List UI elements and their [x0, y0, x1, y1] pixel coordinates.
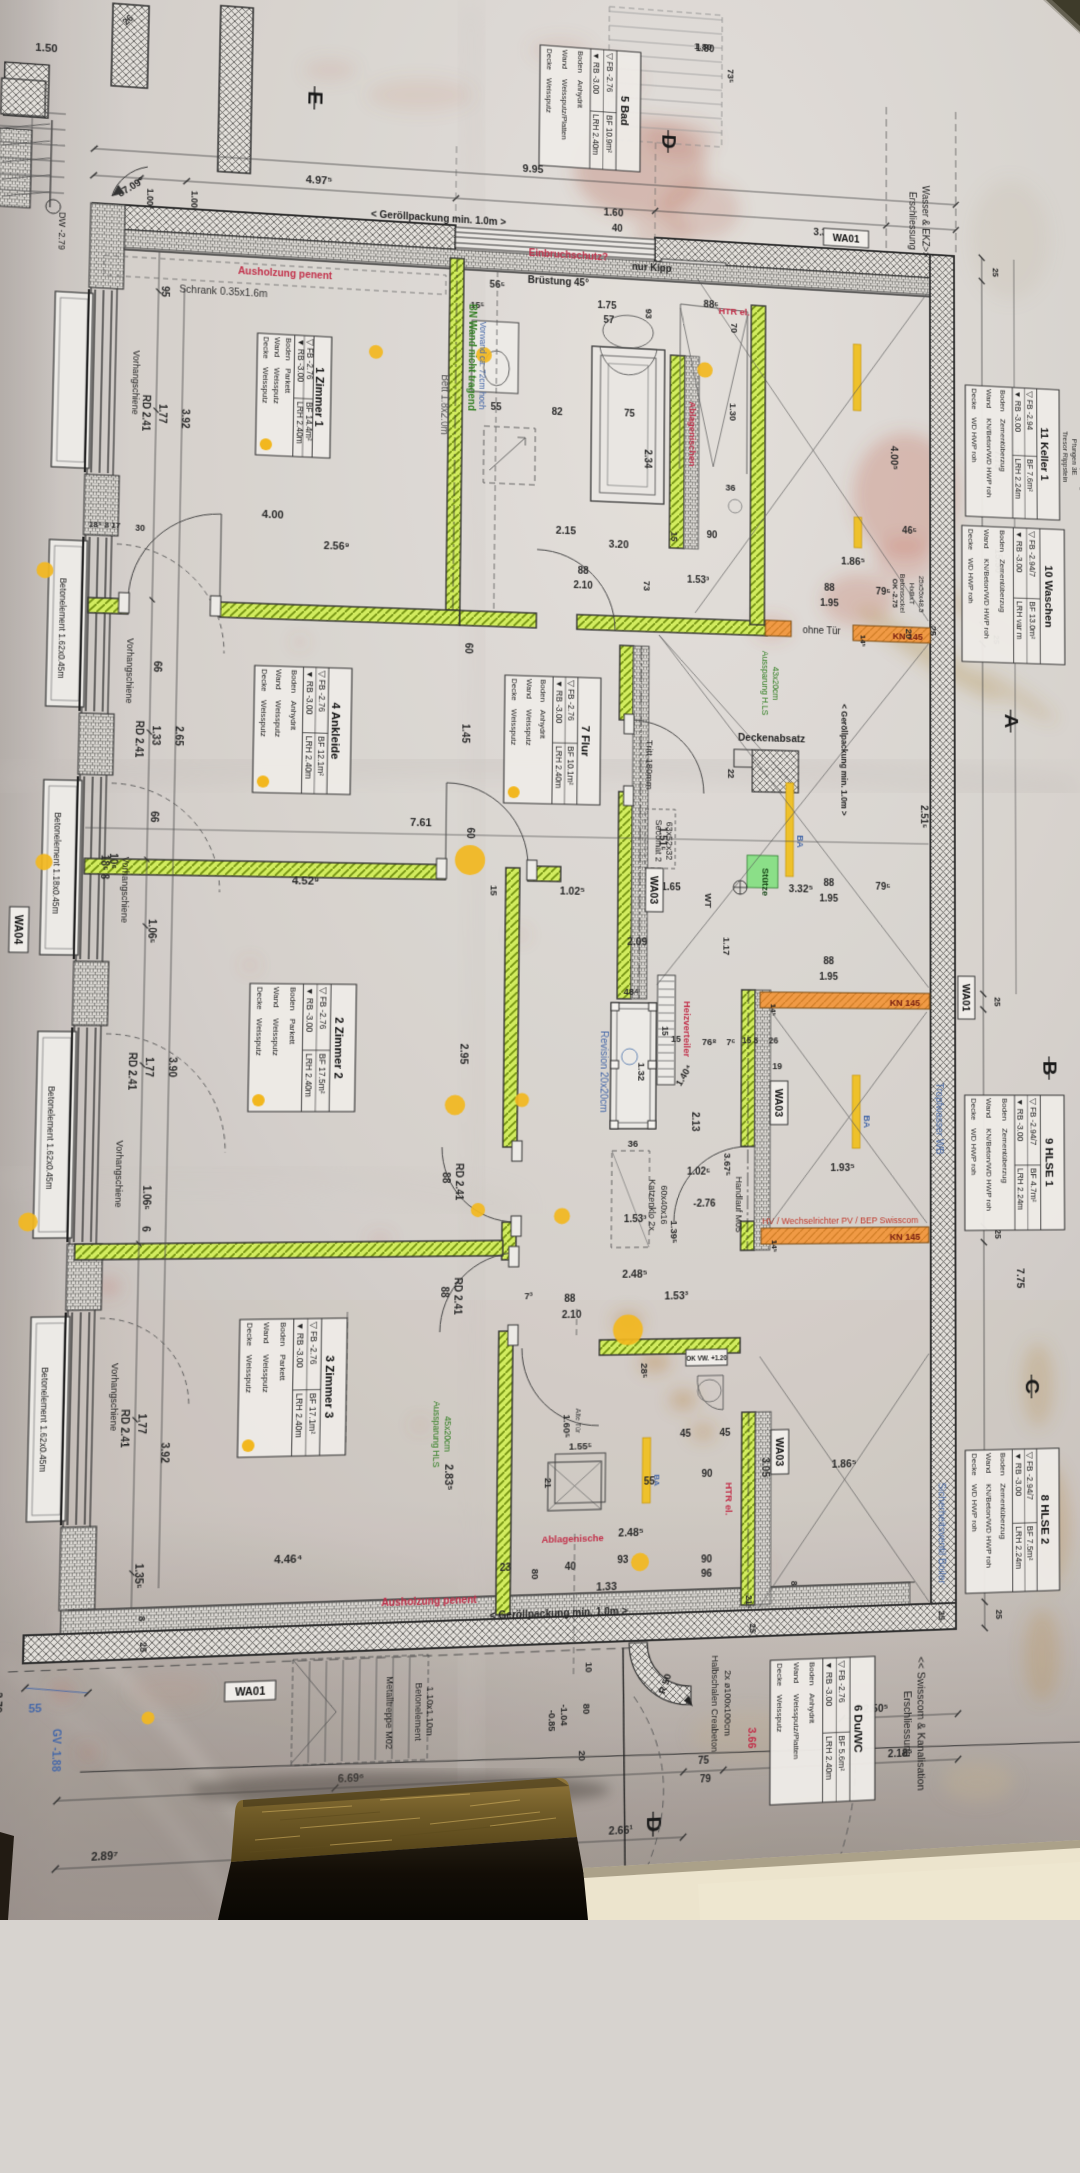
svg-text:60: 60 [462, 643, 473, 655]
svg-text:9 HLSE 1: 9 HLSE 1 [1042, 1138, 1055, 1187]
svg-text:Weissputz: Weissputz [775, 1695, 784, 1733]
svg-text:Wand: Wand [271, 987, 280, 1008]
svg-text:KN/Beton/WD HWP roh: KN/Beton/WD HWP roh [983, 558, 991, 639]
svg-text:Erschliessung: Erschliessung [901, 1691, 912, 1758]
svg-text:79⁵: 79⁵ [876, 882, 891, 893]
svg-text:25: 25 [993, 997, 1002, 1006]
svg-text:25: 25 [138, 1642, 149, 1653]
svg-text:▽ FB -2.94: ▽ FB -2.94 [1025, 391, 1034, 430]
svg-text:90: 90 [707, 530, 718, 541]
svg-text:Boden: Boden [808, 1662, 817, 1686]
svg-text:Heizverteiler: Heizverteiler [681, 1001, 692, 1057]
svg-text:3.32⁵: 3.32⁵ [789, 884, 813, 896]
svg-text:45: 45 [719, 1428, 730, 1439]
svg-text:OK VW. +1.20: OK VW. +1.20 [686, 1355, 727, 1363]
svg-text:LRH 2.24m: LRH 2.24m [1016, 1168, 1025, 1210]
svg-text:BF 7.5m²: BF 7.5m² [1026, 1526, 1035, 1561]
svg-text:Wasser & EKZ>>: Wasser & EKZ>> [920, 185, 930, 257]
svg-text:15: 15 [660, 1026, 670, 1036]
svg-text:1.40⁴: 1.40⁴ [674, 1063, 695, 1088]
svg-text:Parkett: Parkett [283, 368, 292, 394]
svg-text:Alte Tür: Alte Tür [574, 1408, 583, 1434]
svg-text:Decke: Decke [970, 388, 978, 410]
svg-text:-2.76: -2.76 [693, 1199, 716, 1210]
svg-text:8: 8 [136, 1616, 147, 1622]
svg-text:6.69⁶: 6.69⁶ [338, 1772, 365, 1786]
svg-text:D: D [658, 134, 681, 150]
svg-text:Decke: Decke [967, 528, 975, 550]
svg-text:1.00: 1.00 [189, 190, 199, 208]
svg-text:1.80: 1.80 [694, 42, 712, 53]
svg-text:43x20cm: 43x20cm [771, 667, 780, 701]
svg-text:60: 60 [464, 827, 475, 839]
svg-text:45: 45 [680, 1429, 691, 1440]
svg-text:▼ RB -3.00: ▼ RB -3.00 [824, 1661, 834, 1707]
svg-text:66: 66 [148, 811, 159, 823]
svg-text:LRH 2.40m: LRH 2.40m [303, 736, 314, 779]
svg-text:BF 17.5m²: BF 17.5m² [317, 1053, 328, 1094]
svg-text:Wand: Wand [560, 49, 569, 70]
svg-text:H: H [465, 1799, 490, 1816]
svg-text:2.66¹: 2.66¹ [609, 1824, 634, 1837]
svg-text:19: 19 [772, 1061, 782, 1071]
svg-text:Weissputz: Weissputz [258, 700, 268, 737]
svg-text:▼ RB -3.00: ▼ RB -3.00 [304, 987, 315, 1032]
svg-text:▽ FB -2.76: ▽ FB -2.76 [837, 1660, 847, 1703]
svg-text:LRH 2.40m: LRH 2.40m [553, 746, 563, 789]
svg-text:RD 2.41: RD 2.41 [451, 1277, 462, 1315]
svg-text:88: 88 [438, 1286, 449, 1298]
svg-text:WD HWP roh: WD HWP roh [970, 417, 978, 463]
svg-text:HTR el.: HTR el. [718, 306, 750, 318]
svg-text:1.17: 1.17 [721, 937, 732, 955]
svg-text:Tresor Rippstein: Tresor Rippstein [1061, 431, 1069, 483]
svg-text:1.65: 1.65 [661, 882, 680, 893]
svg-text:RD 2.41: RD 2.41 [453, 1163, 464, 1201]
svg-text:WA03: WA03 [773, 1437, 785, 1466]
svg-text:80: 80 [529, 1568, 540, 1580]
svg-text:Decke: Decke [775, 1663, 784, 1687]
svg-text:Stütze: Stütze [760, 868, 770, 897]
svg-text:2.15: 2.15 [556, 525, 576, 537]
svg-text:75: 75 [698, 1755, 709, 1767]
svg-text:HTR el.: HTR el. [723, 1482, 734, 1516]
svg-text:55: 55 [28, 1703, 42, 1716]
svg-text:E: E [303, 90, 328, 105]
svg-text:-1.04: -1.04 [559, 1704, 569, 1727]
svg-text:75: 75 [624, 409, 635, 420]
svg-text:1.93⁵: 1.93⁵ [830, 1162, 854, 1174]
svg-text:1.06⁵: 1.06⁵ [140, 1185, 152, 1210]
svg-text:▼ RB -3.00: ▼ RB -3.00 [304, 670, 315, 715]
svg-text:18⁵ 8 17: 18⁵ 8 17 [89, 520, 122, 530]
svg-text:Weissputz: Weissputz [272, 367, 282, 404]
svg-text:40: 40 [612, 224, 623, 235]
svg-text:79: 79 [700, 1774, 711, 1786]
svg-text:18⁵ 8: 18⁵ 8 [98, 854, 110, 879]
svg-text:7 Flur: 7 Flur [579, 725, 593, 757]
svg-text:88: 88 [824, 583, 835, 594]
svg-text:▼ RB -3.00: ▼ RB -3.00 [1013, 390, 1022, 432]
svg-text:C: C [1021, 1379, 1044, 1394]
svg-text:4 Ankleide: 4 Ankleide [329, 702, 344, 760]
svg-text:2 Zimmer 2: 2 Zimmer 2 [331, 1017, 346, 1079]
svg-text:1.33: 1.33 [596, 1581, 617, 1594]
svg-text:3.90: 3.90 [166, 1057, 178, 1077]
svg-text:1.06⁵: 1.06⁵ [145, 919, 157, 944]
svg-text:3.92: 3.92 [158, 1442, 170, 1463]
svg-text:LRH var m: LRH var m [1014, 601, 1023, 640]
svg-text:1.35⁵: 1.35⁵ [132, 1563, 144, 1589]
svg-text:15: 15 [671, 1034, 681, 1044]
svg-text:76⁸: 76⁸ [702, 1037, 717, 1048]
svg-text:Vorhangschiene: Vorhangschiene [113, 1140, 125, 1207]
svg-text:Anhydrit: Anhydrit [538, 710, 547, 740]
svg-text:WA01: WA01 [235, 1685, 265, 1699]
svg-text:1.75: 1.75 [597, 300, 616, 311]
svg-text:Boden: Boden [278, 1322, 288, 1347]
svg-text:Brüstung 45°: Brüstung 45° [528, 275, 589, 289]
svg-text:Boden: Boden [998, 530, 1006, 553]
svg-text:2.83⁵: 2.83⁵ [442, 1464, 454, 1490]
svg-text:< Geröllpackung min. 1.0m >: < Geröllpackung min. 1.0m > [839, 704, 848, 816]
svg-text:2x ø100x100cm: 2x ø100x100cm [723, 1670, 733, 1736]
svg-text:1.02⁵: 1.02⁵ [560, 886, 585, 898]
svg-text:90: 90 [701, 1469, 712, 1480]
svg-text:Weissputz: Weissputz [254, 1018, 264, 1056]
svg-text:1.30: 1.30 [727, 403, 737, 422]
svg-text:1.33: 1.33 [149, 725, 161, 745]
svg-text:KN/Beton/WD HWP roh: KN/Beton/WD HWP roh [984, 418, 992, 498]
svg-text:2.48⁵: 2.48⁵ [622, 1269, 647, 1281]
svg-text:1.53³: 1.53³ [664, 1290, 688, 1302]
svg-text:LRH 2.40m: LRH 2.40m [303, 1053, 314, 1097]
svg-text:Zementüberzug: Zementüberzug [999, 1483, 1007, 1539]
svg-text:Ausholzung penent: Ausholzung penent [238, 266, 333, 282]
svg-text:14⁵: 14⁵ [859, 635, 867, 648]
svg-text:Ablagenische: Ablagenische [541, 1533, 604, 1546]
svg-text:3.67⁵: 3.67⁵ [721, 1153, 732, 1176]
svg-text:2.51⁵: 2.51⁵ [918, 805, 928, 829]
svg-text:25: 25 [991, 268, 1000, 277]
svg-text:Decke: Decke [970, 1453, 978, 1476]
svg-text:Weissputz/Platten: Weissputz/Platten [791, 1694, 800, 1760]
svg-text:80: 80 [580, 1703, 591, 1715]
svg-text:1.55⁵: 1.55⁵ [569, 1441, 592, 1452]
svg-text:Boden: Boden [539, 679, 548, 702]
svg-text:1.86⁵: 1.86⁵ [832, 1458, 857, 1470]
svg-text:Weissputz: Weissputz [544, 78, 553, 114]
svg-text:BF 10.1m²: BF 10.1m² [566, 746, 576, 785]
svg-text:66: 66 [151, 661, 162, 673]
svg-text:25: 25 [937, 1611, 946, 1621]
svg-text:▽ FB -2.76: ▽ FB -2.76 [308, 1322, 319, 1365]
svg-text:Sicherheitsventil Boiler: Sicherheitsventil Boiler [936, 1482, 946, 1584]
svg-text:▽ FB -2.76: ▽ FB -2.76 [318, 987, 329, 1029]
svg-text:15 8: 15 8 [742, 1036, 758, 1046]
svg-text:10 Waschen: 10 Waschen [1042, 565, 1055, 628]
svg-text:Pfungen 3E: Pfungen 3E [1070, 439, 1078, 476]
svg-text:26: 26 [769, 1036, 779, 1046]
svg-text:LRH 2.24m: LRH 2.24m [1014, 1526, 1023, 1569]
svg-text:1.77: 1.77 [156, 404, 168, 424]
svg-text:Anhydrit: Anhydrit [808, 1693, 817, 1724]
svg-text:1.53³: 1.53³ [624, 1214, 647, 1225]
svg-text:Tritt 180mm: Tritt 180mm [643, 740, 654, 790]
svg-text:Boden: Boden [283, 337, 292, 361]
svg-text:Boden: Boden [289, 670, 298, 694]
svg-text:4.97⁵: 4.97⁵ [306, 174, 333, 187]
svg-text:Katzenklo 2x: Katzenklo 2x [647, 1179, 657, 1231]
svg-text:Wand: Wand [984, 1453, 992, 1474]
svg-text:7⁶: 7⁶ [726, 1037, 735, 1047]
svg-text:2.48⁵: 2.48⁵ [618, 1527, 643, 1540]
svg-text:Decke: Decke [259, 669, 268, 692]
svg-text:1.45: 1.45 [459, 724, 470, 744]
svg-text:Weissputz: Weissputz [524, 709, 533, 745]
svg-text:95: 95 [159, 286, 170, 298]
svg-text:2.09: 2.09 [627, 936, 647, 948]
svg-text:1.95: 1.95 [819, 894, 838, 905]
svg-text:-2.79: -2.79 [0, 1688, 2, 1713]
svg-text:Wand: Wand [984, 389, 992, 409]
svg-text:LRH 2.40m: LRH 2.40m [591, 114, 601, 156]
svg-text:Anhydrit: Anhydrit [288, 701, 298, 731]
svg-text:46⁵: 46⁵ [902, 526, 917, 537]
svg-text:3.92: 3.92 [179, 409, 190, 429]
svg-text:Schrank 0.35x1.6m: Schrank 0.35x1.6m [179, 285, 267, 301]
svg-text:E: E [255, 1822, 281, 1838]
svg-text:Secomat 2: Secomat 2 [654, 819, 664, 862]
svg-text:Handlauf M05: Handlauf M05 [734, 1176, 744, 1232]
svg-text:A: A [1000, 714, 1023, 729]
svg-text:Decke: Decke [545, 48, 554, 71]
svg-text:3.20: 3.20 [609, 539, 629, 551]
svg-text:22: 22 [726, 769, 735, 779]
svg-text:Vorhangschiene: Vorhangschiene [130, 350, 141, 415]
svg-text:8 HLSE 2: 8 HLSE 2 [1038, 1495, 1051, 1545]
svg-text:LRH 2.40m: LRH 2.40m [824, 1736, 834, 1780]
svg-text:WA03: WA03 [647, 876, 659, 904]
svg-text:Deckenabsatz: Deckenabsatz [738, 732, 805, 745]
svg-text:Boden: Boden [999, 390, 1007, 412]
svg-text:-0.85: -0.85 [547, 1710, 557, 1732]
svg-text:3.05: 3.05 [759, 1457, 770, 1477]
svg-text:11 Keller 1: 11 Keller 1 [1038, 427, 1051, 481]
svg-text:Erschliessung: Erschliessung [907, 191, 917, 250]
svg-text:45x20cm: 45x20cm [442, 1416, 452, 1452]
svg-text:Aussparung H.LS: Aussparung H.LS [760, 651, 770, 716]
svg-text:ohne Tür: ohne Tür [803, 626, 841, 638]
svg-text:1.50: 1.50 [35, 42, 58, 55]
svg-text:82: 82 [552, 407, 563, 418]
svg-text:▼ RB -3.00: ▼ RB -3.00 [1014, 530, 1023, 572]
svg-text:15: 15 [488, 885, 499, 896]
svg-text:20: 20 [577, 1750, 587, 1761]
svg-text:1.95: 1.95 [820, 598, 839, 609]
svg-text:LRH 2.40m: LRH 2.40m [294, 401, 305, 444]
svg-text:WA04: WA04 [11, 915, 24, 945]
svg-text:88⁵: 88⁵ [704, 300, 719, 311]
svg-text:Decke: Decke [261, 336, 270, 359]
svg-text:▼ RB -3.00: ▼ RB -3.00 [591, 52, 601, 95]
svg-text:Parkett: Parkett [277, 1354, 287, 1381]
svg-text:▼ RB -3.00: ▼ RB -3.00 [1016, 1098, 1025, 1141]
svg-text:Anhydrit: Anhydrit [576, 80, 585, 109]
svg-text:Decke: Decke [969, 1098, 977, 1121]
svg-text:Wand: Wand [272, 337, 281, 358]
svg-text:B: B [1039, 1061, 1062, 1076]
svg-text:Wand: Wand [261, 1322, 271, 1344]
svg-text:2.89⁷: 2.89⁷ [91, 1850, 118, 1864]
svg-text:73: 73 [641, 580, 652, 591]
svg-text:25x55x48.5: 25x55x48.5 [917, 576, 925, 613]
svg-text:BN Wand nicht tragend: BN Wand nicht tragend [465, 303, 477, 411]
svg-text:96: 96 [701, 1569, 712, 1580]
svg-text:1.00²: 1.00² [145, 188, 155, 209]
svg-text:BF 4.7m²: BF 4.7m² [1029, 1168, 1038, 1202]
svg-text:1.60⁵: 1.60⁵ [561, 1414, 572, 1438]
svg-text:5 Bad: 5 Bad [618, 96, 631, 127]
svg-text:30: 30 [135, 523, 145, 533]
svg-text:▽ FB -2.94/7: ▽ FB -2.94/7 [1025, 1452, 1034, 1501]
svg-text:88: 88 [578, 566, 589, 577]
svg-text:Weissputz: Weissputz [270, 1018, 280, 1056]
svg-text:LRH 2.40m: LRH 2.40m [293, 1393, 304, 1438]
svg-text:Boden: Boden [576, 50, 585, 73]
svg-text:WT: WT [702, 893, 713, 908]
svg-text:1.77: 1.77 [135, 1414, 147, 1435]
svg-text:Wand: Wand [791, 1662, 800, 1684]
svg-text:Weissputz: Weissputz [260, 1354, 270, 1392]
svg-text:Revision 20x20cm: Revision 20x20cm [597, 1031, 608, 1113]
svg-text:3.66: 3.66 [745, 1727, 757, 1748]
svg-text:Weissputz: Weissputz [273, 700, 283, 737]
svg-text:6: 6 [139, 1226, 150, 1232]
svg-text:▽ FB -2.76: ▽ FB -2.76 [317, 670, 328, 712]
svg-text:79⁵: 79⁵ [876, 587, 891, 598]
svg-text:48⁴: 48⁴ [623, 987, 638, 998]
svg-text:70: 70 [728, 323, 738, 334]
svg-text:▼ RB -3.00: ▼ RB -3.00 [294, 1322, 305, 1368]
svg-text:36: 36 [725, 483, 736, 494]
svg-text:4.52⁹: 4.52⁹ [292, 875, 320, 887]
svg-text:KN 145: KN 145 [890, 998, 921, 1009]
svg-text:LRH 2.24m: LRH 2.24m [1014, 458, 1023, 499]
svg-text:Parkett: Parkett [287, 1018, 297, 1045]
svg-text:2.65: 2.65 [172, 726, 184, 746]
svg-text:BF 12.1m²: BF 12.1m² [316, 736, 327, 776]
svg-text:DW -2.79: DW -2.79 [56, 212, 67, 250]
svg-text:1.77: 1.77 [142, 1057, 154, 1077]
svg-text:2.10: 2.10 [562, 1310, 582, 1321]
svg-text:1.39⁵: 1.39⁵ [668, 1220, 679, 1243]
svg-text:WD HWP roh: WD HWP roh [969, 1128, 977, 1175]
svg-text:▼ RB -3.00: ▼ RB -3.00 [295, 338, 306, 382]
svg-text:36: 36 [628, 1139, 639, 1150]
svg-text:63x52x32: 63x52x32 [664, 822, 674, 861]
svg-text:21⁵: 21⁵ [744, 1595, 754, 1609]
svg-text:88: 88 [440, 1172, 451, 1184]
svg-text:57: 57 [603, 315, 614, 326]
svg-text:28⁵: 28⁵ [638, 1363, 649, 1378]
svg-text:▽ FB -2.76: ▽ FB -2.76 [566, 680, 576, 721]
svg-text:93: 93 [643, 308, 653, 319]
svg-text:▽ FB -2.94/7: ▽ FB -2.94/7 [1028, 1098, 1037, 1145]
svg-text:2.10: 2.10 [573, 580, 592, 591]
svg-text:25: 25 [748, 1623, 758, 1633]
svg-text:Ablagenischen: Ablagenischen [686, 401, 697, 466]
svg-text:Vorhangschiene: Vorhangschiene [124, 638, 136, 704]
svg-text:7³: 7³ [524, 1291, 532, 1301]
svg-text:▼ RB -3.00: ▼ RB -3.00 [554, 680, 564, 724]
svg-text:BF 10.9m²: BF 10.9m² [604, 115, 614, 153]
svg-text:6 Du/WC: 6 Du/WC [852, 1704, 865, 1753]
svg-text:Aussparung HLS: Aussparung HLS [431, 1401, 442, 1468]
svg-text:Vorhangschiene: Vorhangschiene [119, 857, 131, 923]
svg-text:14⁵: 14⁵ [770, 1240, 779, 1253]
svg-text:4.00: 4.00 [901, 1893, 912, 1915]
svg-text:Weissputz: Weissputz [261, 367, 271, 404]
svg-text:D: D [642, 1816, 667, 1833]
svg-text:BF 5.6m²: BF 5.6m² [837, 1735, 847, 1771]
svg-text:WA01: WA01 [960, 984, 971, 1012]
svg-text:1.60: 1.60 [604, 207, 624, 219]
svg-text:Boden: Boden [1000, 1098, 1008, 1121]
svg-text:4.00: 4.00 [262, 509, 284, 522]
svg-text:▽ FB -2.76: ▽ FB -2.76 [604, 53, 614, 93]
svg-text:RD 2.41: RD 2.41 [125, 1052, 137, 1090]
svg-text:Tropfwasser WB: Tropfwasser WB [934, 1083, 944, 1155]
svg-text:Vorwand ca. 72cm hoch: Vorwand ca. 72cm hoch [477, 321, 488, 410]
svg-text:7.75: 7.75 [1014, 1268, 1025, 1288]
svg-text:▼ RB -3.00: ▼ RB -3.00 [1013, 1452, 1022, 1496]
svg-text:BA: BA [862, 1115, 871, 1128]
svg-text:25: 25 [994, 1609, 1003, 1619]
svg-text:KN/Beton/WD HWP roh: KN/Beton/WD HWP roh [984, 1484, 993, 1569]
svg-text:88: 88 [564, 1294, 576, 1305]
svg-text:88: 88 [823, 878, 834, 889]
svg-text:2.56⁹: 2.56⁹ [324, 540, 350, 553]
svg-text:1.53³: 1.53³ [687, 575, 710, 586]
svg-text:Vorhangschiene: Vorhangschiene [108, 1363, 120, 1431]
svg-text:1.32: 1.32 [635, 1062, 646, 1081]
svg-text:15: 15 [668, 531, 678, 542]
svg-text:1.95: 1.95 [819, 972, 838, 983]
svg-text:1.86⁵: 1.86⁵ [841, 556, 865, 568]
svg-text:BF 7.6m²: BF 7.6m² [1026, 459, 1035, 492]
svg-text:60x40x16: 60x40x16 [659, 1185, 669, 1224]
svg-text:2.34: 2.34 [642, 449, 653, 469]
svg-text:WA03: WA03 [772, 1089, 783, 1117]
svg-text:2.13: 2.13 [689, 1112, 700, 1132]
svg-text:87.09°: 87.09° [116, 176, 147, 200]
svg-text:HV / Wechselrichter PV / BEP S: HV / Wechselrichter PV / BEP Swisscom [762, 1215, 919, 1226]
svg-text:RD 2.41: RD 2.41 [118, 1409, 130, 1448]
svg-text:20: 20 [903, 629, 913, 640]
svg-text:RD 2.41: RD 2.41 [132, 720, 144, 758]
svg-text:<< Swisscom & Kanalisation: << Swisscom & Kanalisation [915, 1656, 926, 1791]
svg-text:25: 25 [927, 626, 937, 637]
svg-text:7.61: 7.61 [410, 817, 432, 829]
svg-text:1.02⁵: 1.02⁵ [687, 1167, 711, 1178]
svg-text:4.00⁵: 4.00⁵ [888, 446, 899, 471]
svg-text:23: 23 [500, 1563, 512, 1574]
svg-text:HxBxT: HxBxT [908, 583, 916, 605]
svg-text:3 Zimmer 3: 3 Zimmer 3 [322, 1355, 337, 1419]
svg-text:Weissputz: Weissputz [509, 709, 518, 746]
svg-text:73⁵: 73⁵ [725, 69, 735, 84]
